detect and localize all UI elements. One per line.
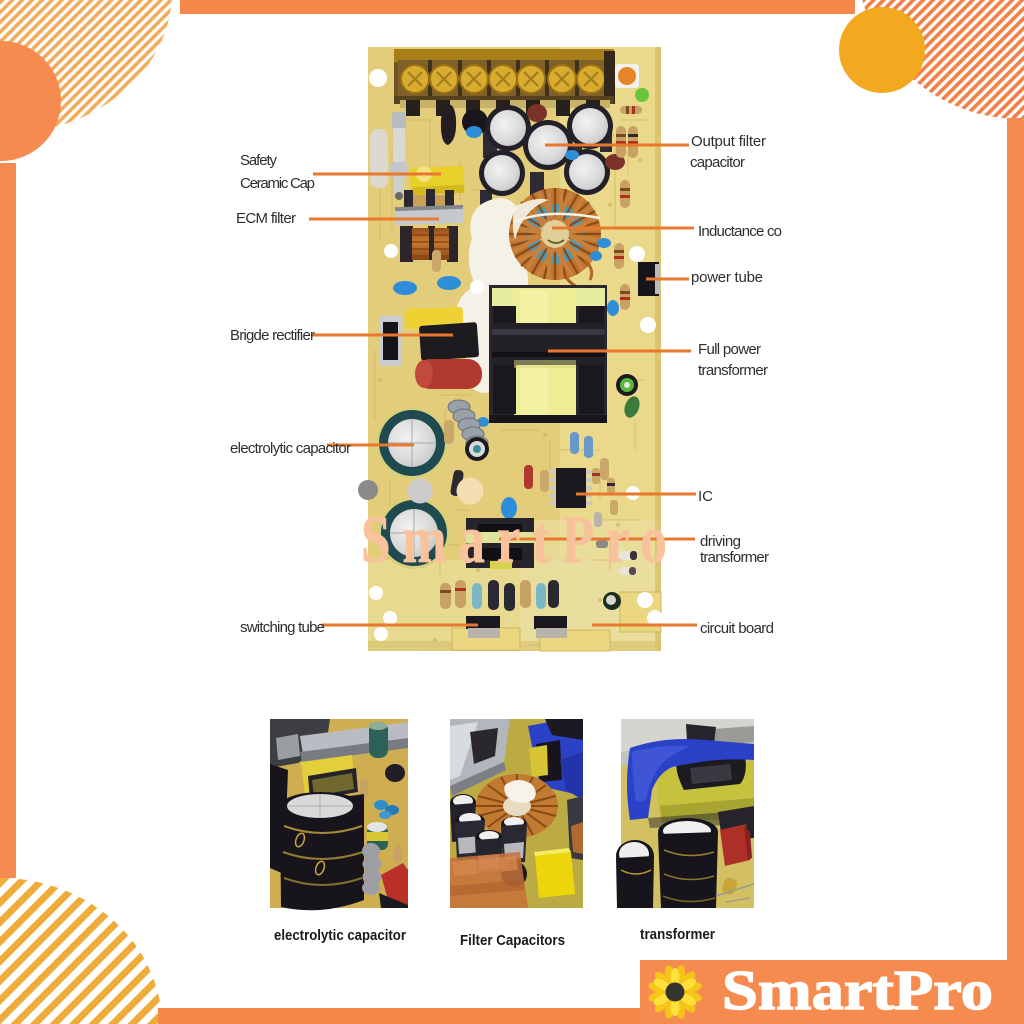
svg-text:SmartPro: SmartPro: [722, 960, 993, 1022]
svg-text:transformer: transformer: [698, 362, 768, 379]
svg-text:Safety: Safety: [240, 152, 278, 169]
svg-text:SmartPro: SmartPro: [361, 503, 679, 578]
svg-text:driving: driving: [700, 533, 741, 550]
svg-text:Filter Capacitors: Filter Capacitors: [460, 932, 565, 949]
svg-text:capacitor: capacitor: [690, 154, 745, 171]
svg-text:transformer: transformer: [700, 549, 769, 566]
svg-text:IC: IC: [698, 488, 713, 505]
svg-text:electrolytic capacitor: electrolytic capacitor: [274, 927, 406, 944]
svg-text:Brigde rectifier: Brigde rectifier: [230, 327, 315, 344]
svg-text:circuit board: circuit board: [700, 620, 774, 637]
svg-text:transformer: transformer: [640, 926, 715, 943]
svg-text:switching tube: switching tube: [240, 619, 325, 636]
svg-text:Inductance co: Inductance co: [698, 223, 782, 240]
svg-text:electrolytic capacitor: electrolytic capacitor: [230, 440, 351, 457]
svg-text:Full power: Full power: [698, 341, 761, 358]
svg-text:power tube: power tube: [691, 269, 763, 286]
svg-text:Output filter: Output filter: [691, 133, 766, 150]
svg-text:ECM filter: ECM filter: [236, 210, 296, 227]
svg-text:Ceramic Cap: Ceramic Cap: [240, 175, 315, 192]
